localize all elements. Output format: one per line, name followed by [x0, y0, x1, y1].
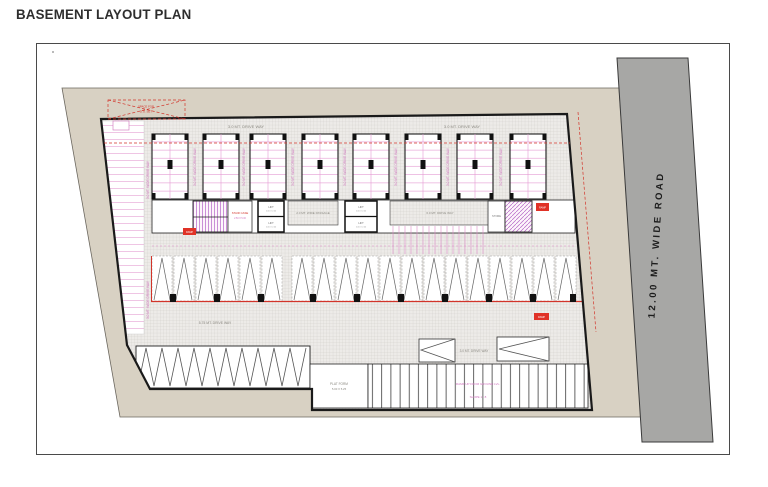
lift-size: 2.00 X 2.00: [266, 227, 277, 229]
parking-stall: [358, 256, 378, 301]
stair-room-size: 2.50 X 5.00: [234, 218, 246, 220]
lift-size: 2.00 X 2.00: [356, 211, 367, 213]
stair-room: [228, 201, 252, 232]
wedge-box: [419, 339, 455, 362]
aisle-label: 3.0 MT. WIDE DRIVE WAY: [343, 147, 347, 186]
platform-label-1: PLAT FORM: [330, 382, 348, 386]
central-drive-label: 6.0 MT. DRIVE WAY: [426, 211, 453, 215]
space-box-label-2: D.G. SET: [140, 110, 152, 114]
parking-stall: [336, 256, 356, 301]
drive-label-middle: 5.75 MT. DRIVE WAY: [199, 321, 232, 325]
basement-plan-canvas: 12.00 MT. WIDE ROAD 3.0 MT. DRIVE WAY 3.…: [36, 43, 730, 455]
parking-bay: [510, 134, 546, 199]
parking-stall: [240, 256, 260, 301]
parking-stall: [512, 256, 532, 301]
drive-label-top-left: 3.0 MT. DRIVE WAY: [228, 124, 265, 129]
aisle-label: 3.0 MT. WIDE DRIVE WAY: [291, 147, 295, 186]
parking-bay: [152, 134, 188, 199]
parking-stall: [152, 256, 172, 301]
parking-bay: [302, 134, 338, 199]
lift-size: 2.00 X 2.00: [266, 211, 277, 213]
parking-bay: [203, 134, 239, 199]
ramp-label-2: SLOPE 1 : 8: [470, 395, 487, 399]
parking-bay: [457, 134, 493, 199]
lift-label: LIFT: [268, 221, 274, 225]
ramp-marker-label: RAMP: [539, 206, 546, 209]
parking-stall: [424, 256, 444, 301]
parking-stall: [402, 256, 422, 301]
lift-label: LIFT: [268, 205, 274, 209]
parking-stall: [292, 256, 312, 301]
ramp-marker-label: RAMP: [186, 231, 193, 234]
ramp-marker-label: RAMP: [538, 316, 545, 319]
ramp-label-1: RAMP UP FROM GROUND LVL.: [456, 382, 500, 386]
drive-label-top-right: 3.0 MT. DRIVE WAY: [444, 124, 481, 129]
drive-continuation-lines: [392, 226, 488, 254]
drive-label-lower: 3.0 MT. DRIVE WAY: [460, 349, 490, 353]
parking-stall: [490, 256, 510, 301]
lift-size: 2.00 X 2.00: [356, 227, 367, 229]
frame-dot: [52, 51, 54, 53]
aisle-label: 3.0 MT. WIDE DRIVE WAY: [499, 147, 503, 186]
lift-label: LIFT: [358, 221, 364, 225]
aisle-label: 3.0 MT. WIDE DRIVE WAY: [242, 147, 246, 186]
zigzag-stall-strip: [136, 346, 310, 388]
small-annotation-box: [113, 121, 129, 130]
page-title: BASEMENT LAYOUT PLAN: [16, 6, 191, 22]
aisle-label: 3.0 MT. WIDE DRIVE WAY: [394, 147, 398, 186]
parking-stall: [380, 256, 400, 301]
parking-stall: [196, 256, 216, 301]
passage-label: 2.0 MT. WIDE PASSAGE: [296, 211, 329, 215]
store-label: STORE: [492, 214, 501, 218]
platform: [310, 364, 368, 408]
aisle-label: 3.0 MT. WIDE DRIVE WAY: [193, 147, 197, 186]
aisle-label-left: 3.0 MT. WIDE DRIVE WAY: [146, 160, 150, 199]
parking-stall: [262, 256, 282, 301]
parking-stall: [534, 256, 554, 301]
parking-stall: [218, 256, 238, 301]
lift-label: LIFT: [358, 205, 364, 209]
stair-room-label: STAIR CASE: [232, 211, 249, 215]
building-interior: 3.0 MT. DRIVE WAY 3.0 MT. DRIVE WAY 3.0 …: [97, 114, 592, 410]
staircase-right: [505, 201, 532, 232]
parking-bay: [353, 134, 389, 199]
staircase-left: [193, 201, 228, 232]
platform-label-2: 5.00 X 5.25: [332, 387, 347, 391]
parking-bay: [405, 134, 441, 199]
wedge-box: [497, 337, 549, 361]
space-box-label-1: SPACE FOR: [138, 105, 154, 109]
parking-bay: [250, 134, 286, 199]
aisle-label: 3.0 MT. WIDE DRIVE WAY: [446, 147, 450, 186]
parking-stall: [468, 256, 488, 301]
parking-stall: [174, 256, 194, 301]
parking-stall: [446, 256, 466, 301]
aisle-label-left: 3.0 MT. WIDE DRIVE WAY: [146, 280, 150, 319]
ramp: [368, 364, 588, 408]
parking-stall: [314, 256, 334, 301]
